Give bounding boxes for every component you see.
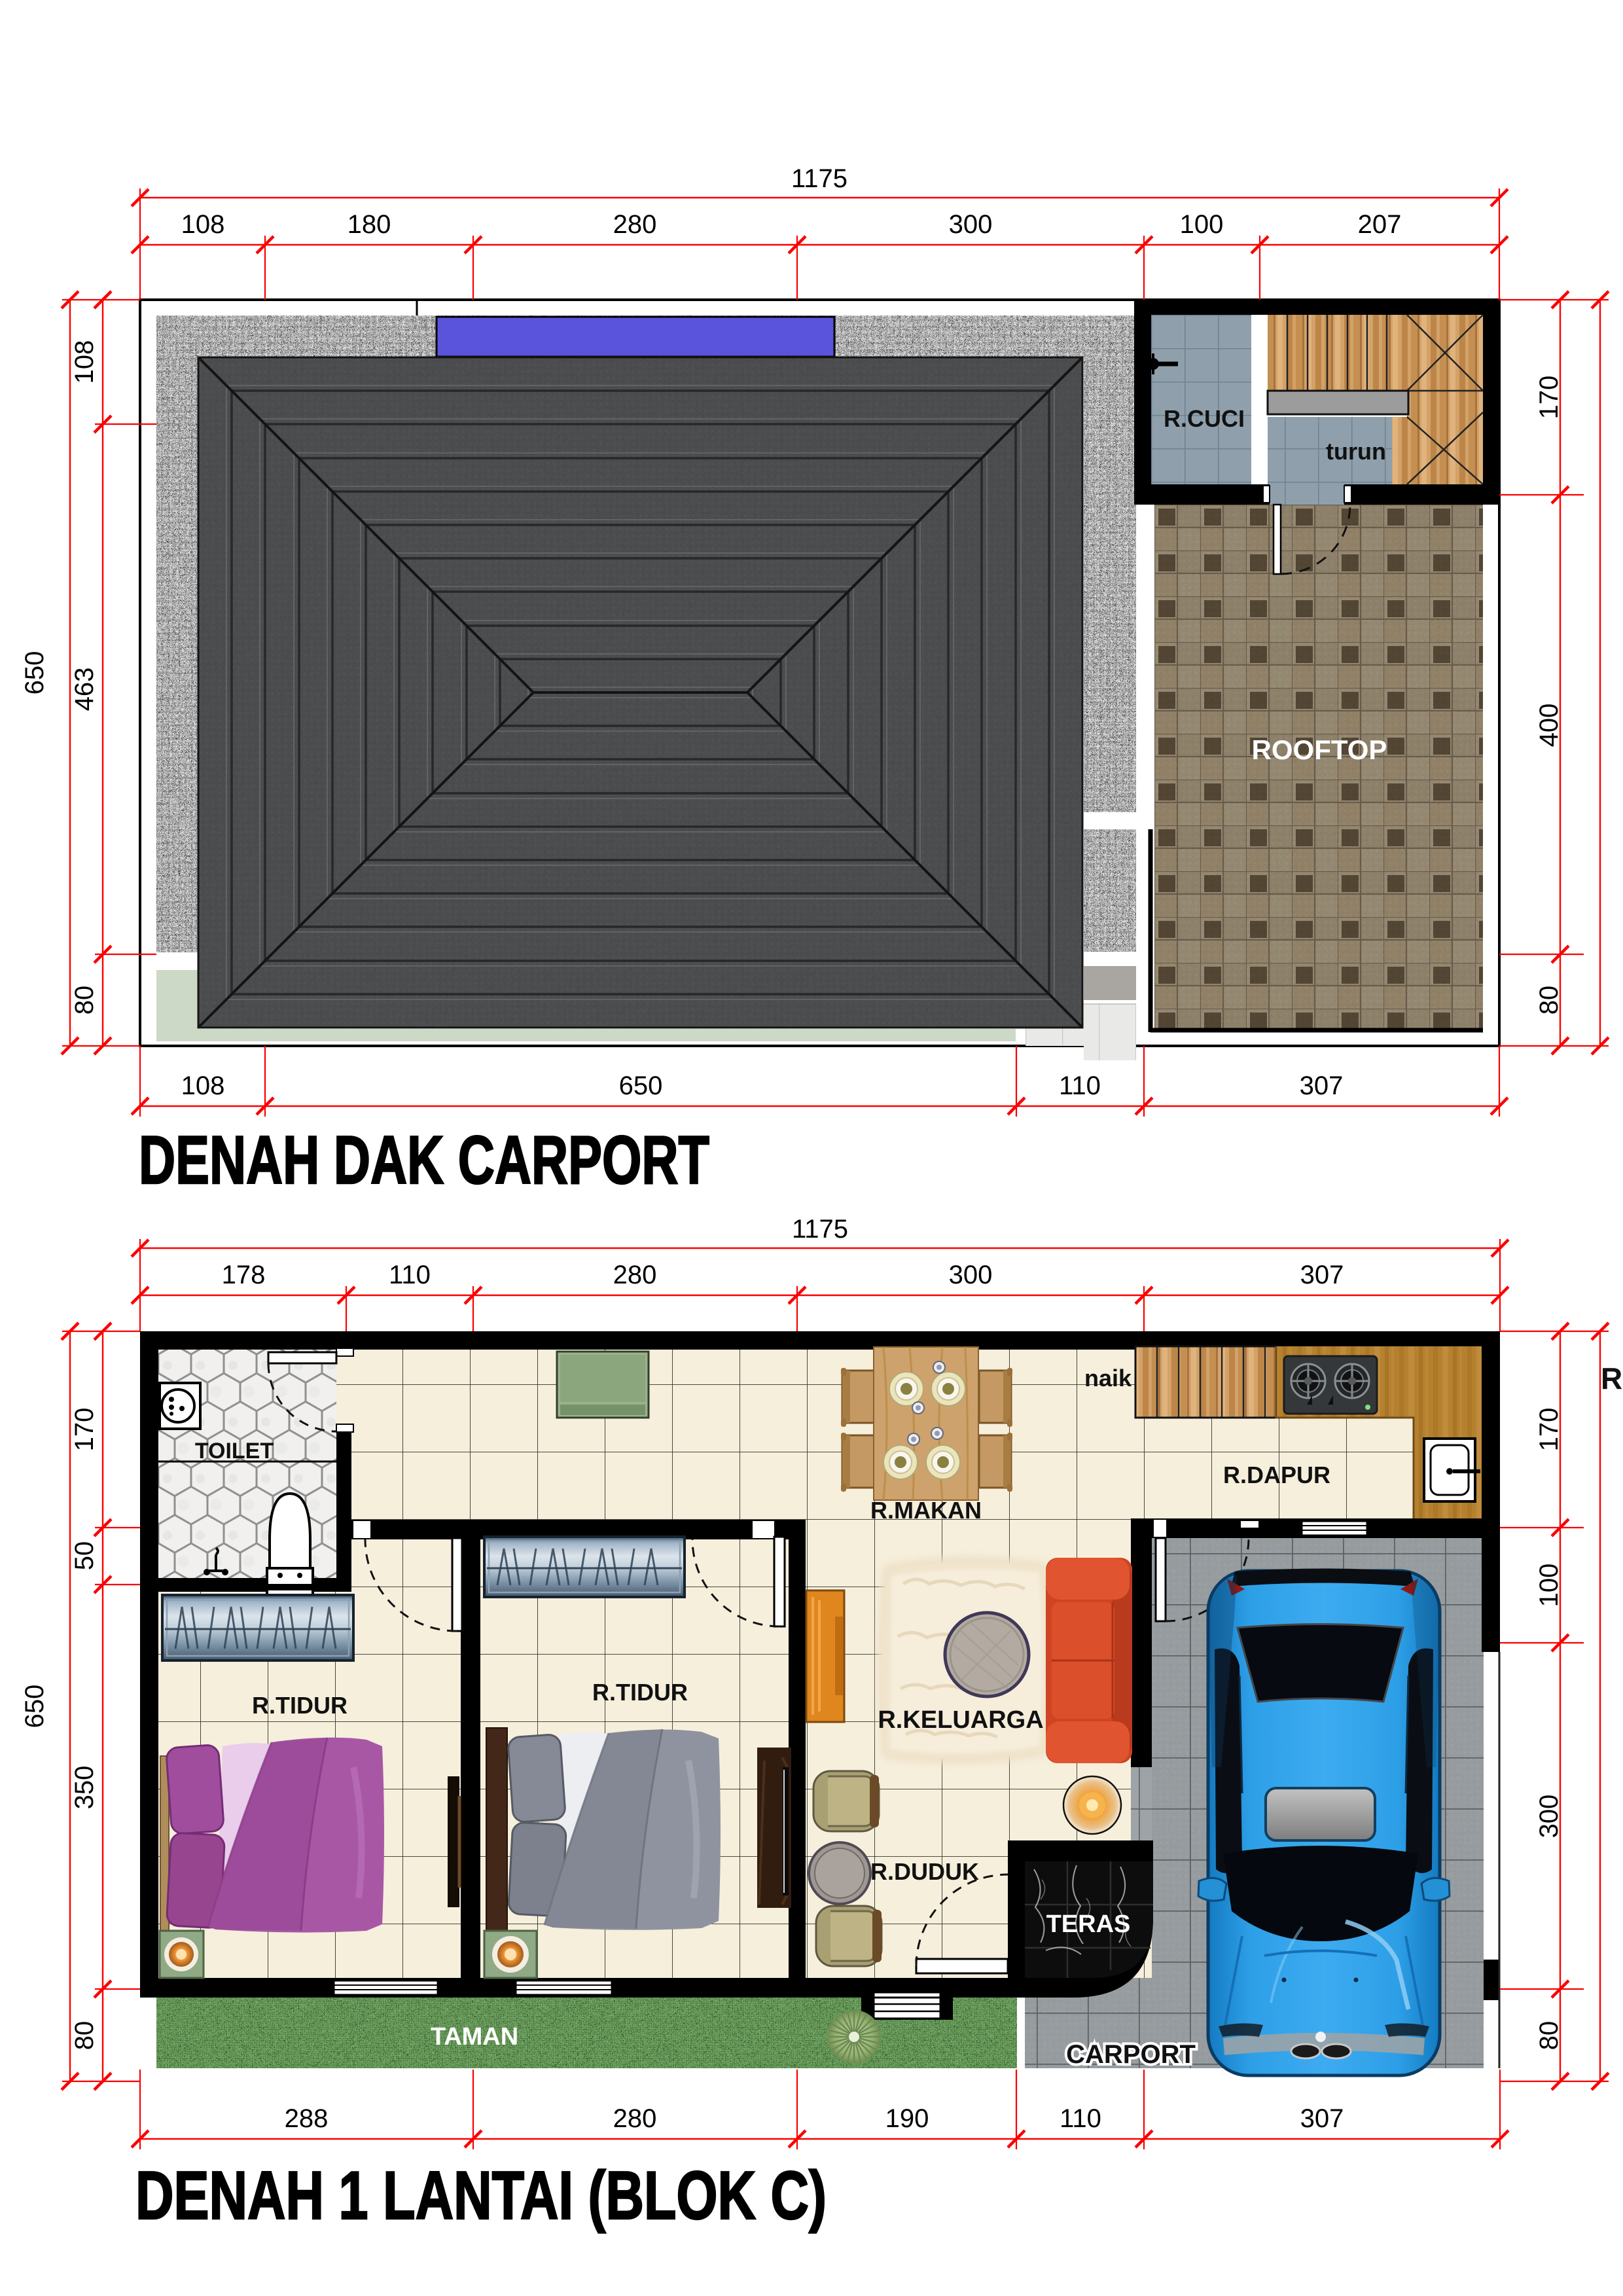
svg-text:463: 463 xyxy=(70,668,99,711)
svg-text:178: 178 xyxy=(222,1261,266,1289)
svg-text:650: 650 xyxy=(20,651,49,695)
svg-text:100: 100 xyxy=(1535,1564,1563,1607)
svg-text:170: 170 xyxy=(1535,1408,1563,1452)
svg-text:naik: naik xyxy=(1084,1365,1132,1391)
svg-text:400: 400 xyxy=(1535,704,1563,747)
svg-text:280: 280 xyxy=(613,2104,657,2133)
svg-text:DENAH 1 LANTAI (BLOK C): DENAH 1 LANTAI (BLOK C) xyxy=(135,2158,827,2234)
svg-text:110: 110 xyxy=(1059,1071,1101,1100)
svg-text:110: 110 xyxy=(389,1261,431,1289)
svg-text:288: 288 xyxy=(285,2104,329,2133)
svg-text:180: 180 xyxy=(348,210,391,239)
svg-text:1175: 1175 xyxy=(791,164,847,193)
svg-text:108: 108 xyxy=(181,1071,225,1100)
svg-text:307: 307 xyxy=(1300,2104,1344,2133)
svg-text:R.DUDUK: R.DUDUK xyxy=(870,1858,979,1885)
svg-text:R.TIDUR: R.TIDUR xyxy=(592,1679,688,1706)
svg-text:108: 108 xyxy=(70,340,99,384)
svg-text:307: 307 xyxy=(1300,1071,1344,1100)
svg-text:80: 80 xyxy=(70,986,99,1015)
svg-text:207: 207 xyxy=(1358,210,1402,239)
svg-text:170: 170 xyxy=(1535,376,1563,420)
svg-text:300: 300 xyxy=(949,210,993,239)
svg-text:R.DAPUR: R.DAPUR xyxy=(1223,1462,1330,1488)
svg-text:108: 108 xyxy=(181,210,225,239)
svg-text:R.KELUARGA: R.KELUARGA xyxy=(878,1706,1043,1734)
svg-text:R.CUCI: R.CUCI xyxy=(1601,1361,1623,1395)
svg-text:turun: turun xyxy=(1326,438,1386,465)
svg-text:50: 50 xyxy=(70,1541,99,1571)
svg-text:TOILET: TOILET xyxy=(195,1439,274,1463)
svg-text:170: 170 xyxy=(70,1408,99,1452)
svg-text:1175: 1175 xyxy=(792,1215,848,1244)
svg-text:TERAS: TERAS xyxy=(1046,1910,1131,1938)
svg-text:307: 307 xyxy=(1300,1261,1344,1289)
svg-text:190: 190 xyxy=(885,2104,929,2133)
svg-text:350: 350 xyxy=(70,1766,99,1810)
svg-text:100: 100 xyxy=(1180,210,1224,239)
svg-text:650: 650 xyxy=(20,1685,49,1729)
svg-text:110: 110 xyxy=(1060,2104,1101,2133)
svg-text:80: 80 xyxy=(1535,2021,1563,2051)
svg-text:DENAH DAK CARPORT: DENAH DAK CARPORT xyxy=(139,1122,709,1198)
svg-text:650: 650 xyxy=(619,1071,663,1100)
svg-text:R.TIDUR: R.TIDUR xyxy=(252,1692,348,1719)
svg-text:280: 280 xyxy=(613,1261,657,1289)
svg-text:CARPORT: CARPORT xyxy=(1066,2040,1196,2069)
svg-text:300: 300 xyxy=(1535,1795,1563,1839)
svg-text:R.MAKAN: R.MAKAN xyxy=(870,1497,982,1524)
svg-text:300: 300 xyxy=(949,1261,993,1289)
svg-text:80: 80 xyxy=(1535,986,1563,1015)
svg-text:R.CUCI: R.CUCI xyxy=(1164,405,1245,432)
svg-text:ROOFTOP: ROOFTOP xyxy=(1252,734,1387,765)
svg-text:280: 280 xyxy=(613,210,657,239)
svg-text:TAMAN: TAMAN xyxy=(431,2023,518,2051)
svg-text:80: 80 xyxy=(70,2021,99,2051)
